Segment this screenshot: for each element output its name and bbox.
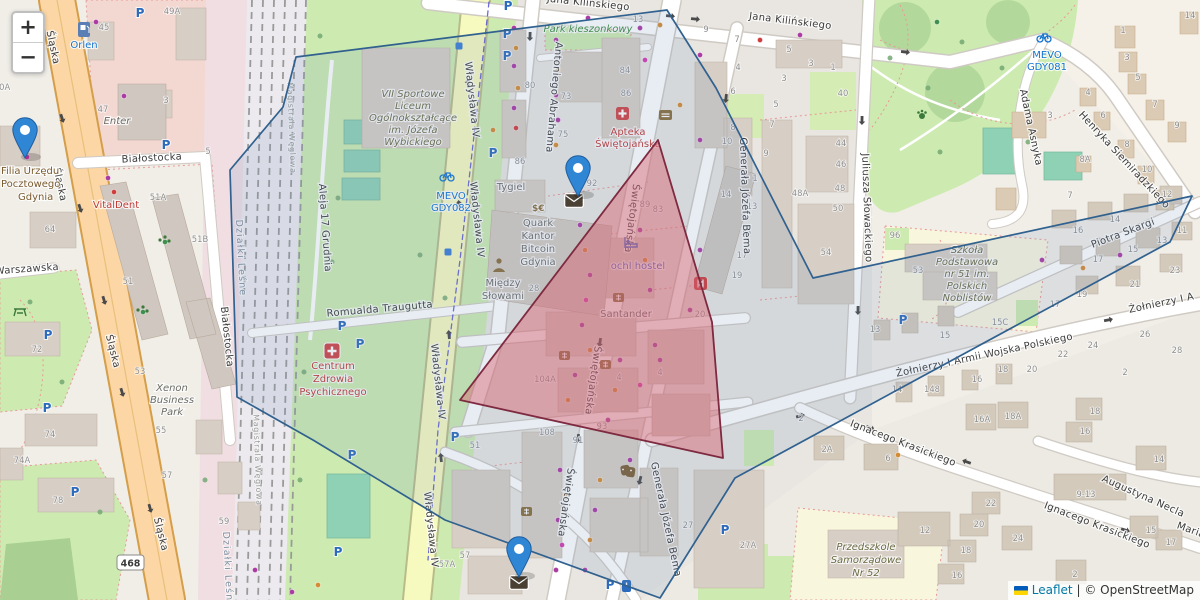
house-number: 48A [792,188,809,198]
house-number: 17 [1166,537,1177,547]
house-number: 8A [1079,154,1090,164]
house-number: 8 [1124,139,1129,149]
house-number: 51A [150,192,167,202]
house-number: 18 [961,545,972,555]
svg-text:GDY081: GDY081 [1027,62,1067,73]
house-number: 16 [952,570,963,580]
shop-dot [797,32,802,37]
house-number: 4 [735,62,740,72]
parking-icon: P [334,545,343,559]
shop-dot [121,93,126,98]
svg-text:Gdynia: Gdynia [18,192,53,203]
house-number: 27A [740,540,757,550]
tree-icon [938,150,943,155]
house-number: 54 [821,247,832,257]
svg-text:Xenon: Xenon [155,383,188,394]
house-number: 40 [838,88,849,98]
house-number: 14 [1154,454,1165,464]
house-number: 7 [769,119,774,129]
leaflet-link[interactable]: Leaflet [1032,583,1073,597]
house-number: 74A [14,455,31,465]
house-number: 26 [1140,329,1151,339]
zoom-in-button[interactable]: + [13,13,43,43]
shop-dot [105,175,110,180]
house-number: 1 [830,62,835,72]
parking-icon: P [721,523,730,537]
svg-text:Nr 52: Nr 52 [852,568,880,579]
house-number: 1 [1120,25,1125,35]
house-number: 16A [974,414,991,424]
tree-icon [960,40,965,45]
house-number: 24 [1088,340,1099,350]
house-number: 9 [703,24,708,34]
map-canvas[interactable]: 4549A473560A51A51B5164727474A78555759538… [0,0,1200,600]
shop-dot [553,567,558,572]
house-number: 47 [98,104,109,114]
svg-text:Samorządowe: Samorządowe [831,555,902,566]
svg-text:Filia Urzędu: Filia Urzędu [1,166,59,177]
shop-dot [757,37,762,42]
poi-label-enter: Enter [104,116,132,127]
tree-icon [318,34,323,39]
tree-icon [298,478,303,483]
house-number: 28 [1172,345,1183,355]
house-number: 64 [45,224,56,234]
house-number: 51 [123,276,134,286]
parking-icon: P [504,0,513,13]
road-shield-468: 468 [117,555,144,570]
house-number: 20 [1027,364,1038,374]
house-number: 148 [924,384,940,394]
shop-dot [111,189,116,194]
house-number: 18 [1090,406,1101,416]
house-number: 21 [1130,279,1141,289]
fuel-icon [78,22,90,37]
attribution-bar: Leaflet | © OpenStreetMap [1008,581,1200,600]
house-number: 3 [808,58,813,68]
house-number: 3 [1047,110,1052,120]
house-number: 5 [773,99,778,109]
house-number: 5 [1135,72,1140,82]
shop-dot [315,582,320,587]
house-number: 2 [1072,569,1077,579]
house-number: 59 [219,516,230,526]
house-number: 7 [734,34,739,44]
zoom-out-button[interactable]: − [13,43,43,72]
house-number: 57 [460,550,471,560]
parking-icon: P [162,138,171,152]
house-number: 96 [890,230,901,240]
attribution-separator: | [1076,583,1080,597]
house-number: 55 [156,425,167,435]
house-number: 12 [920,525,931,535]
house-number: 57 [162,470,173,480]
tree-icon [28,300,33,305]
house-number: 20 [974,519,985,529]
map-tiles: 4549A473560A51A51B5164727474A78555759538… [0,0,1200,600]
house-number: 22 [986,498,997,508]
house-number: 16 [972,374,983,384]
shop-dot [140,309,145,314]
house-number: 6 [1100,110,1105,120]
house-number: 49A [164,6,181,16]
house-number: 9-13 [1076,489,1095,499]
house-number: 48 [835,183,846,193]
shop-dot [697,52,702,57]
poi-label-mevo-gdy081: MEVO GDY081 [1027,50,1067,73]
tree-icon [60,380,65,385]
house-number: 9 [763,148,768,158]
house-number: 45 [99,22,110,32]
parking-icon: P [136,6,145,20]
house-number: 3 [163,95,168,105]
house-number: 14 [1185,10,1196,20]
house-number: 72 [32,344,43,354]
house-number: 44 [836,138,847,148]
house-number: 74 [45,429,56,439]
shop-dot [934,19,939,24]
tree-icon [888,56,893,61]
shop-dot [252,567,257,572]
house-number: 24 [1013,533,1024,543]
house-number: 60A [0,82,10,92]
svg-text:468: 468 [121,559,141,570]
house-number: 46 [836,159,847,169]
house-number: 7 [1152,99,1157,109]
house-number: 6 [885,453,890,463]
house-number: 2A [821,444,832,454]
shop-dot [289,589,294,594]
house-number: 23 [1170,265,1181,275]
house-number: 9 [1174,120,1179,130]
house-number: 53 [135,366,146,376]
ukraine-flag-icon [1014,586,1028,595]
shop-dot [162,239,167,244]
house-number: 7 [1067,190,1072,200]
poi-label-vitaldent: VitalDent [93,200,139,211]
poi-label-xenon: Xenon Business Park [150,383,194,418]
house-number: 5 [205,146,210,156]
svg-text:MEVO: MEVO [1032,50,1062,61]
house-number: 6 [730,86,735,96]
tree-icon [203,478,208,483]
house-number: 15 [1146,525,1157,535]
poi-label-post-office: Filia Urzędu Pocztowego Gdynia [1,166,60,203]
osm-link[interactable]: © OpenStreetMap [1084,583,1194,597]
shop-dot [895,452,900,457]
svg-text:Park: Park [161,407,184,418]
house-number: 16 [1080,426,1091,436]
tree-icon [926,86,931,91]
house-number: 57A [439,559,456,569]
zoom-control: + − [11,11,45,74]
house-number: 4 [1085,87,1090,97]
tree-icon [1000,66,1005,71]
house-number: 18A [1005,411,1022,421]
house-number: 5 [786,44,791,54]
house-number: 22 [1058,349,1069,359]
parking-icon: P [44,328,53,342]
parking-icon: P [71,485,80,499]
house-number: 18 [998,364,1009,374]
tree-icon [98,510,103,515]
parking-icon: P [43,401,52,415]
svg-text:Przedszkole: Przedszkole [836,542,895,553]
house-number: 51B [192,234,209,244]
house-number: 3 [1124,52,1129,62]
poi-label-orlen: Orlen [70,40,97,51]
house-number: 3 [781,73,786,83]
house-number: 2 [1122,367,1127,377]
svg-text:Business: Business [150,395,194,406]
house-number: 78 [53,495,64,505]
house-number: 50 [833,203,844,213]
svg-text:Pocztowego: Pocztowego [1,179,60,190]
